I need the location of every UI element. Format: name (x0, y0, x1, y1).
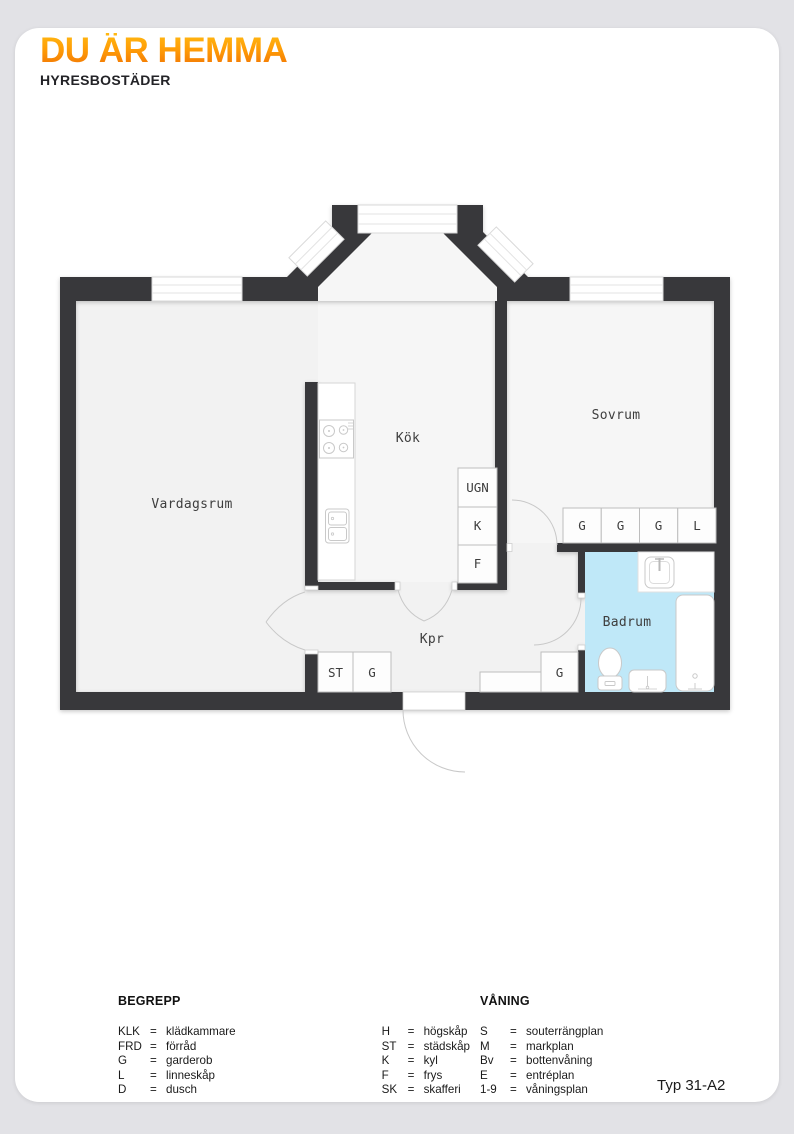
bathtub-icon (676, 595, 714, 691)
stove-icon (320, 420, 355, 458)
closet-label-l: L (693, 518, 701, 533)
bathroom-sink-icon (645, 557, 674, 588)
livingroom-kitchen-wall (305, 382, 318, 590)
legend-row: H=högskåp (382, 1025, 470, 1040)
room-label-vardagsrum: Vardagsrum (151, 497, 232, 512)
legend-row: L=linneskåp (118, 1069, 236, 1084)
legend-begrepp-col1: KLK=klädkammare FRD=förråd G=garderob L=… (118, 1025, 236, 1098)
bottom-wall (60, 692, 730, 710)
room-label-kpr: Kpr (420, 632, 444, 647)
livingroom-hall-wall (305, 652, 318, 692)
legend-row: K=kyl (382, 1054, 470, 1069)
legend-vaning: VÅNING S=souterrängplan M=markplan Bv=bo… (480, 994, 603, 1098)
legend-row: E=entréplan (480, 1069, 603, 1084)
washbasin-icon (629, 670, 666, 692)
closet-label-g3: G (655, 518, 663, 533)
floor-plan: Vardagsrum Kök Sovrum Kpr Badrum UGN K F… (0, 0, 794, 1134)
legend-row: FRD=förråd (118, 1040, 236, 1055)
legend-row: M=markplan (480, 1040, 603, 1055)
closet-label-hall-g2: G (556, 665, 564, 680)
legend-begrepp-col2: H=högskåp ST=städskåp K=kyl F=frys SK=sk… (382, 1025, 470, 1098)
legend-row: G=garderob (118, 1054, 236, 1069)
legend-row: F=frys (382, 1069, 470, 1084)
kitchen-bottom-wall-left (313, 582, 398, 590)
kitchen-sink-icon (326, 509, 350, 543)
left-wall (60, 277, 76, 710)
bedroom-window (570, 277, 663, 301)
legend-vaning-col: S=souterrängplan M=markplan Bv=bottenvån… (480, 1025, 603, 1098)
kitchen-fixtures (318, 383, 355, 580)
room-label-kok: Kök (396, 431, 420, 446)
room-label-badrum: Badrum (603, 615, 652, 630)
closet-label-g1: G (578, 518, 586, 533)
entrance-door-arc (403, 710, 465, 772)
plan-type-label: Typ 31-A2 (657, 1077, 725, 1094)
bathroom-left-wall-top (578, 543, 585, 598)
legend-row: KLK=klädkammare (118, 1025, 236, 1040)
closet-label-st: ST (328, 665, 344, 680)
closet-label-g2: G (617, 518, 625, 533)
legend-vaning-title: VÅNING (480, 994, 603, 1008)
legend-row: Bv=bottenvåning (480, 1054, 603, 1069)
legend-row: S=souterrängplan (480, 1025, 603, 1040)
legend-row: ST=städskåp (382, 1040, 470, 1055)
right-wall (714, 277, 730, 710)
room-label-sovrum: Sovrum (592, 408, 641, 423)
toilet-icon (598, 648, 622, 690)
closet-label-hall-g1: G (368, 665, 376, 680)
entrance-door-opening (403, 692, 465, 710)
livingroom-window (152, 277, 242, 301)
bathroom-left-wall-bottom (578, 645, 585, 692)
hall-bench (480, 672, 541, 692)
cabinet-label-frys: F (474, 556, 482, 571)
legend-row: D=dusch (118, 1083, 236, 1098)
cabinet-label-kyl: K (474, 518, 482, 533)
cabinet-label-ugn: UGN (466, 480, 489, 495)
legend-row: SK=skafferi (382, 1083, 470, 1098)
legend-begrepp-title: BEGREPP (118, 994, 470, 1008)
kitchen-counter (318, 383, 355, 580)
legend-begrepp: BEGREPP KLK=klädkammare FRD=förråd G=gar… (118, 994, 470, 1098)
legend-row: 1-9=våningsplan (480, 1083, 603, 1098)
bay-window-front (358, 205, 457, 233)
